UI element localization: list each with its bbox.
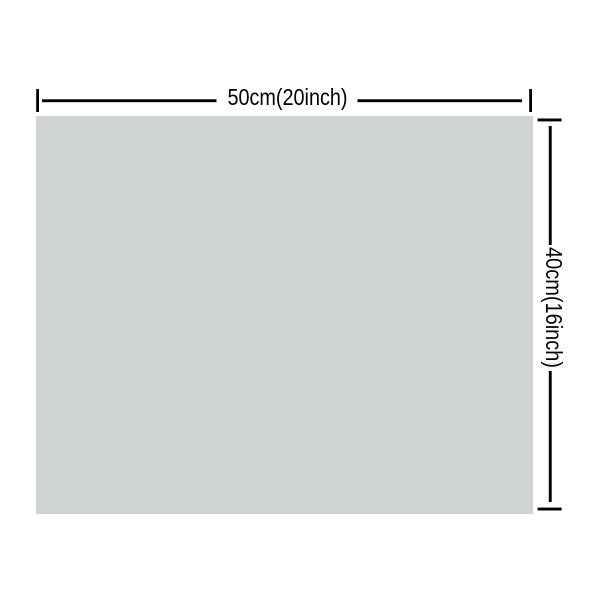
- svg-text:50cm(20inch): 50cm(20inch): [228, 84, 348, 110]
- svg-text:40cm(16inch): 40cm(16inch): [541, 247, 567, 368]
